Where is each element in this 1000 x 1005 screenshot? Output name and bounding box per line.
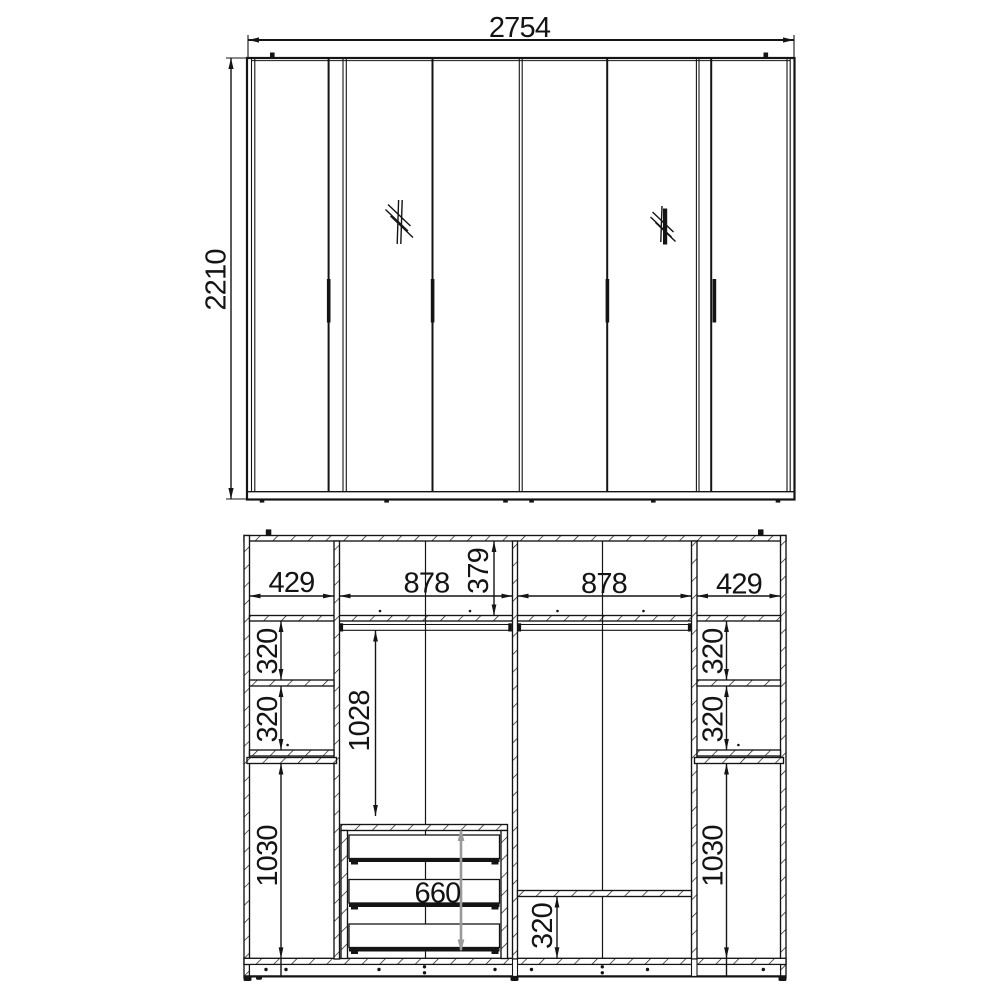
- svg-text:429: 429: [269, 567, 315, 599]
- svg-text:379: 379: [463, 548, 495, 594]
- svg-text:1030: 1030: [698, 825, 730, 886]
- svg-text:320: 320: [698, 697, 730, 743]
- svg-text:1028: 1028: [344, 690, 376, 751]
- svg-text:429: 429: [716, 569, 762, 601]
- svg-text:660: 660: [415, 878, 461, 910]
- svg-text:320: 320: [527, 903, 559, 949]
- svg-text:320: 320: [252, 697, 284, 743]
- svg-text:320: 320: [698, 629, 730, 675]
- svg-text:1030: 1030: [252, 825, 284, 886]
- svg-text:2210: 2210: [201, 249, 233, 310]
- svg-text:320: 320: [252, 629, 284, 675]
- svg-text:2754: 2754: [489, 12, 551, 44]
- svg-text:878: 878: [404, 568, 450, 600]
- svg-text:878: 878: [581, 568, 627, 600]
